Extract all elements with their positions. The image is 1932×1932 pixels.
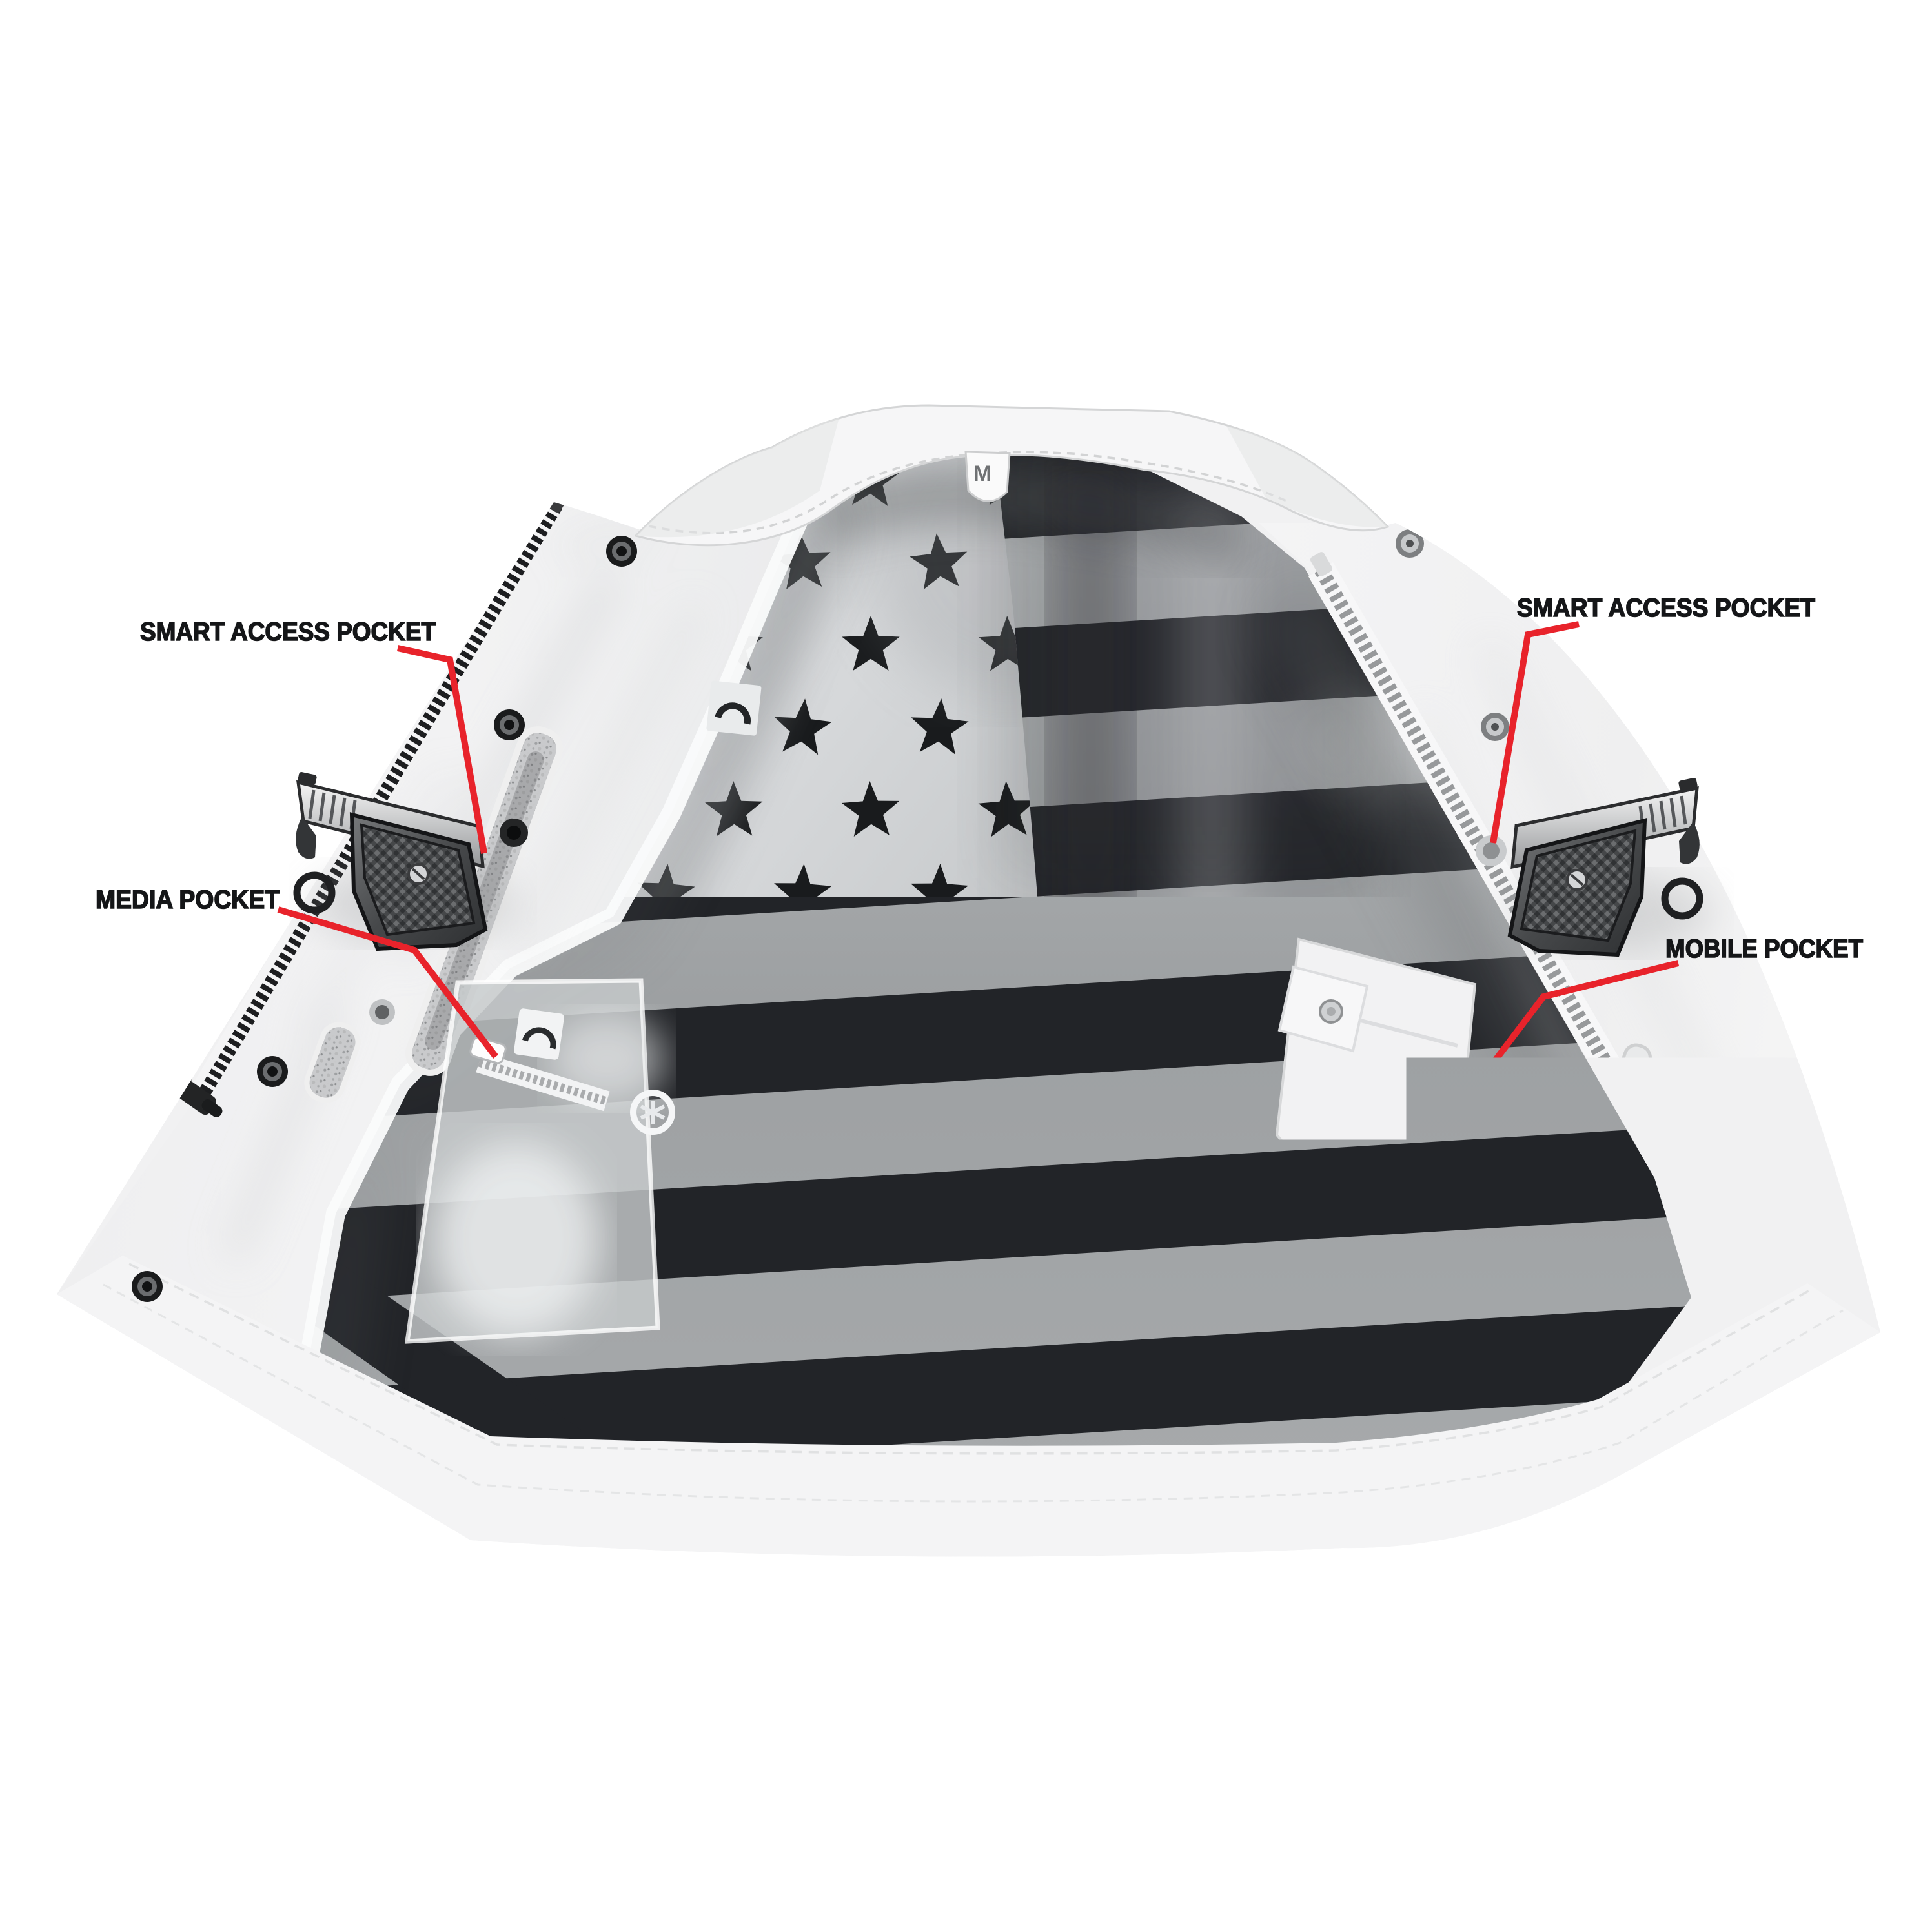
svg-text:M: M xyxy=(973,462,991,486)
svg-text:SMART ACCESS POCKET: SMART ACCESS POCKET xyxy=(140,618,436,646)
svg-text:MEDIA POCKET: MEDIA POCKET xyxy=(96,886,280,914)
svg-text:SMART ACCESS POCKET: SMART ACCESS POCKET xyxy=(1517,594,1815,622)
svg-text:MOBILE POCKET: MOBILE POCKET xyxy=(1665,935,1863,963)
